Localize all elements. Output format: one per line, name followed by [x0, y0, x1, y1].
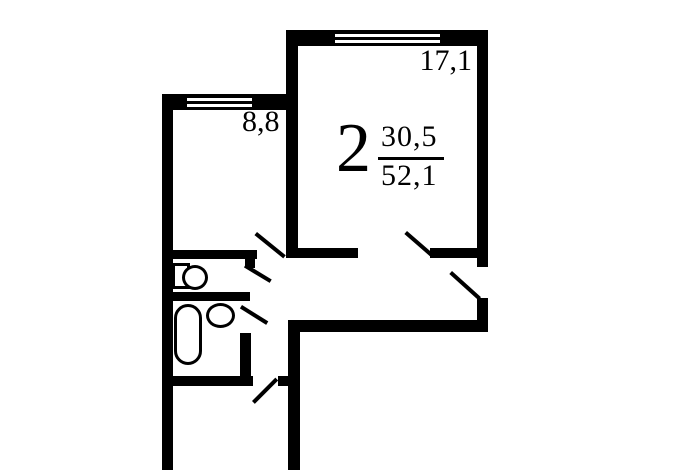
living-area-label: 30,5 [381, 122, 438, 152]
door-living-room-icon [404, 231, 432, 256]
wall-living-room-left [286, 30, 298, 256]
window-pane-line [187, 101, 252, 104]
door-bottom-room-icon [252, 378, 278, 404]
floor-plan: 17,1 8,8 2 30,5 52,1 [0, 0, 700, 470]
apartment-rooms-count-label: 2 [336, 114, 371, 184]
toilet-icon [182, 265, 208, 290]
window-pane-line [335, 37, 440, 40]
small-room-area-label: 8,8 [242, 107, 280, 137]
door-bathroom-icon [240, 305, 268, 325]
wall-corridor-bottom [288, 320, 488, 332]
door-wc-icon [244, 264, 272, 283]
sink-icon [206, 303, 235, 328]
wall-bath-right [240, 333, 251, 378]
door-small-room-icon [254, 232, 285, 258]
total-area-label: 52,1 [381, 161, 438, 191]
entrance-door-icon [449, 271, 481, 300]
bathtub-icon [174, 304, 202, 365]
living-room-area-label: 17,1 [404, 46, 472, 76]
wall-wc-bath-divider [162, 292, 250, 301]
wall-bath-bottom [162, 376, 253, 386]
wall-living-room-bottom-left [286, 248, 358, 258]
wall-living-room-right-upper [477, 30, 488, 267]
wall-bottom-room-right [288, 322, 300, 470]
wall-small-room-bottom [162, 250, 257, 259]
wall-living-room-bottom-right [430, 248, 488, 258]
